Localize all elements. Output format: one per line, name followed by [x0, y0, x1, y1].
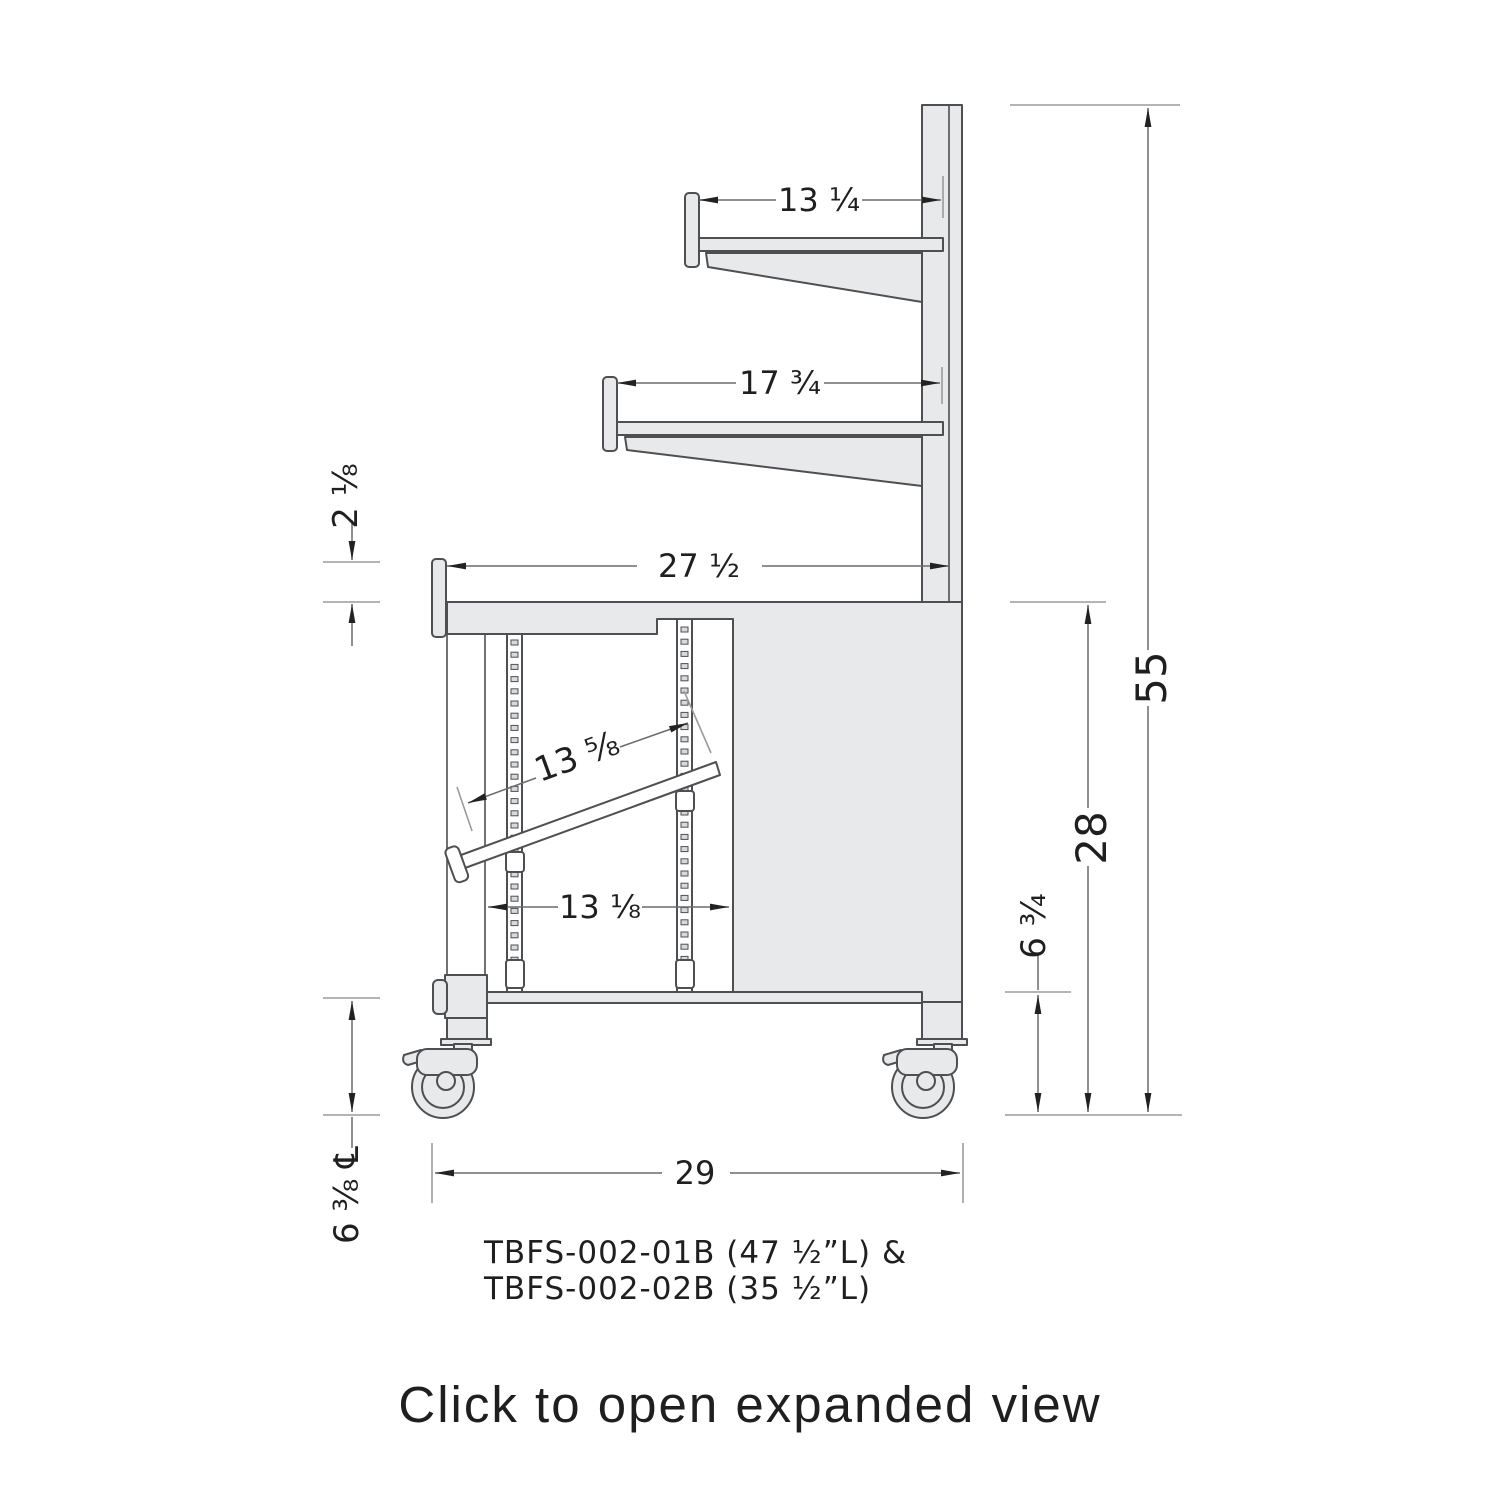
counter-end-cap [432, 559, 446, 637]
cart-structure [403, 105, 967, 1118]
dim-label-rim-height: 2 ⅛ [326, 463, 366, 528]
dim-counter-height: 28 [1010, 602, 1116, 1112]
right-caster [883, 1044, 957, 1118]
dim-rim-height: 2 ⅛ [323, 463, 380, 646]
dim-label-mid-shelf: 17 ¾ [739, 364, 821, 402]
middle-shelf-board [617, 422, 943, 435]
dim-label-bottom-shelf-height: 6 ¾ [1014, 893, 1054, 958]
model-caption-line1: TBFS-002-01B (47 ½”L) & [483, 1235, 907, 1271]
dim-top-shelf-depth: 13 ¼ [699, 176, 943, 219]
dim-counter-depth: 27 ½ [447, 547, 949, 585]
dim-label-base-depth: 29 [675, 1154, 716, 1192]
motor-box [445, 975, 487, 1018]
left-rail-tray-clip [506, 852, 524, 872]
dim-label-counter-depth: 27 ½ [658, 547, 740, 585]
left-leg [447, 1018, 487, 1039]
model-caption-line2: TBFS-002-02B (35 ½”L) [483, 1271, 871, 1307]
expand-link-label[interactable]: Click to open expanded view [398, 1376, 1101, 1433]
right-leg [922, 1002, 962, 1039]
right-rail-bottom-clip [676, 960, 694, 988]
middle-shelf-bracket [625, 437, 922, 486]
dim-label-top-shelf: 13 ¼ [778, 181, 860, 219]
expand-link[interactable]: Click to open expanded view [398, 1376, 1101, 1433]
bottom-shelf-band [487, 992, 922, 1003]
dim-caster-centerline: 6 ⅜ ℄ [323, 998, 380, 1244]
dim-base-depth: 29 [432, 1143, 963, 1203]
top-shelf-end-cap [685, 193, 699, 267]
dim-mid-shelf-depth: 17 ¾ [617, 364, 942, 404]
left-slotted-rail [507, 634, 522, 992]
right-rail-tray-clip [676, 791, 694, 811]
model-caption: TBFS-002-01B (47 ½”L) & TBFS-002-02B (35… [483, 1235, 907, 1307]
dim-overall-height: 55 [1010, 105, 1180, 1112]
drawing-page: 13 ¼ 17 ¾ 27 ½ 2 ⅛ 13 [0, 0, 1500, 1500]
dim-label-caster-centerline: 6 ⅜ ℄ [327, 1146, 367, 1244]
top-shelf-board [699, 238, 943, 251]
left-rail-bottom-clip [506, 960, 524, 988]
right-wheel-hub [917, 1072, 935, 1090]
middle-shelf-end-cap [603, 377, 617, 451]
dim-label-counter-height: 28 [1067, 811, 1116, 864]
dim-label-rail-spacing: 13 ⅛ [559, 888, 641, 926]
motor-box-tab [433, 980, 447, 1014]
dim-label-overall-height: 55 [1127, 651, 1176, 704]
left-wheel-hub [437, 1072, 455, 1090]
left-caster [403, 1044, 477, 1118]
top-shelf-bracket [706, 253, 922, 302]
dim-label-tray-length: 13 ⅝ [529, 723, 624, 790]
technical-drawing: 13 ¼ 17 ¾ 27 ½ 2 ⅛ 13 [0, 0, 1500, 1500]
counter-and-side-panel [447, 602, 962, 1002]
back-post [922, 105, 962, 605]
dim-bottom-shelf-height: 6 ¾ [1005, 893, 1071, 1112]
